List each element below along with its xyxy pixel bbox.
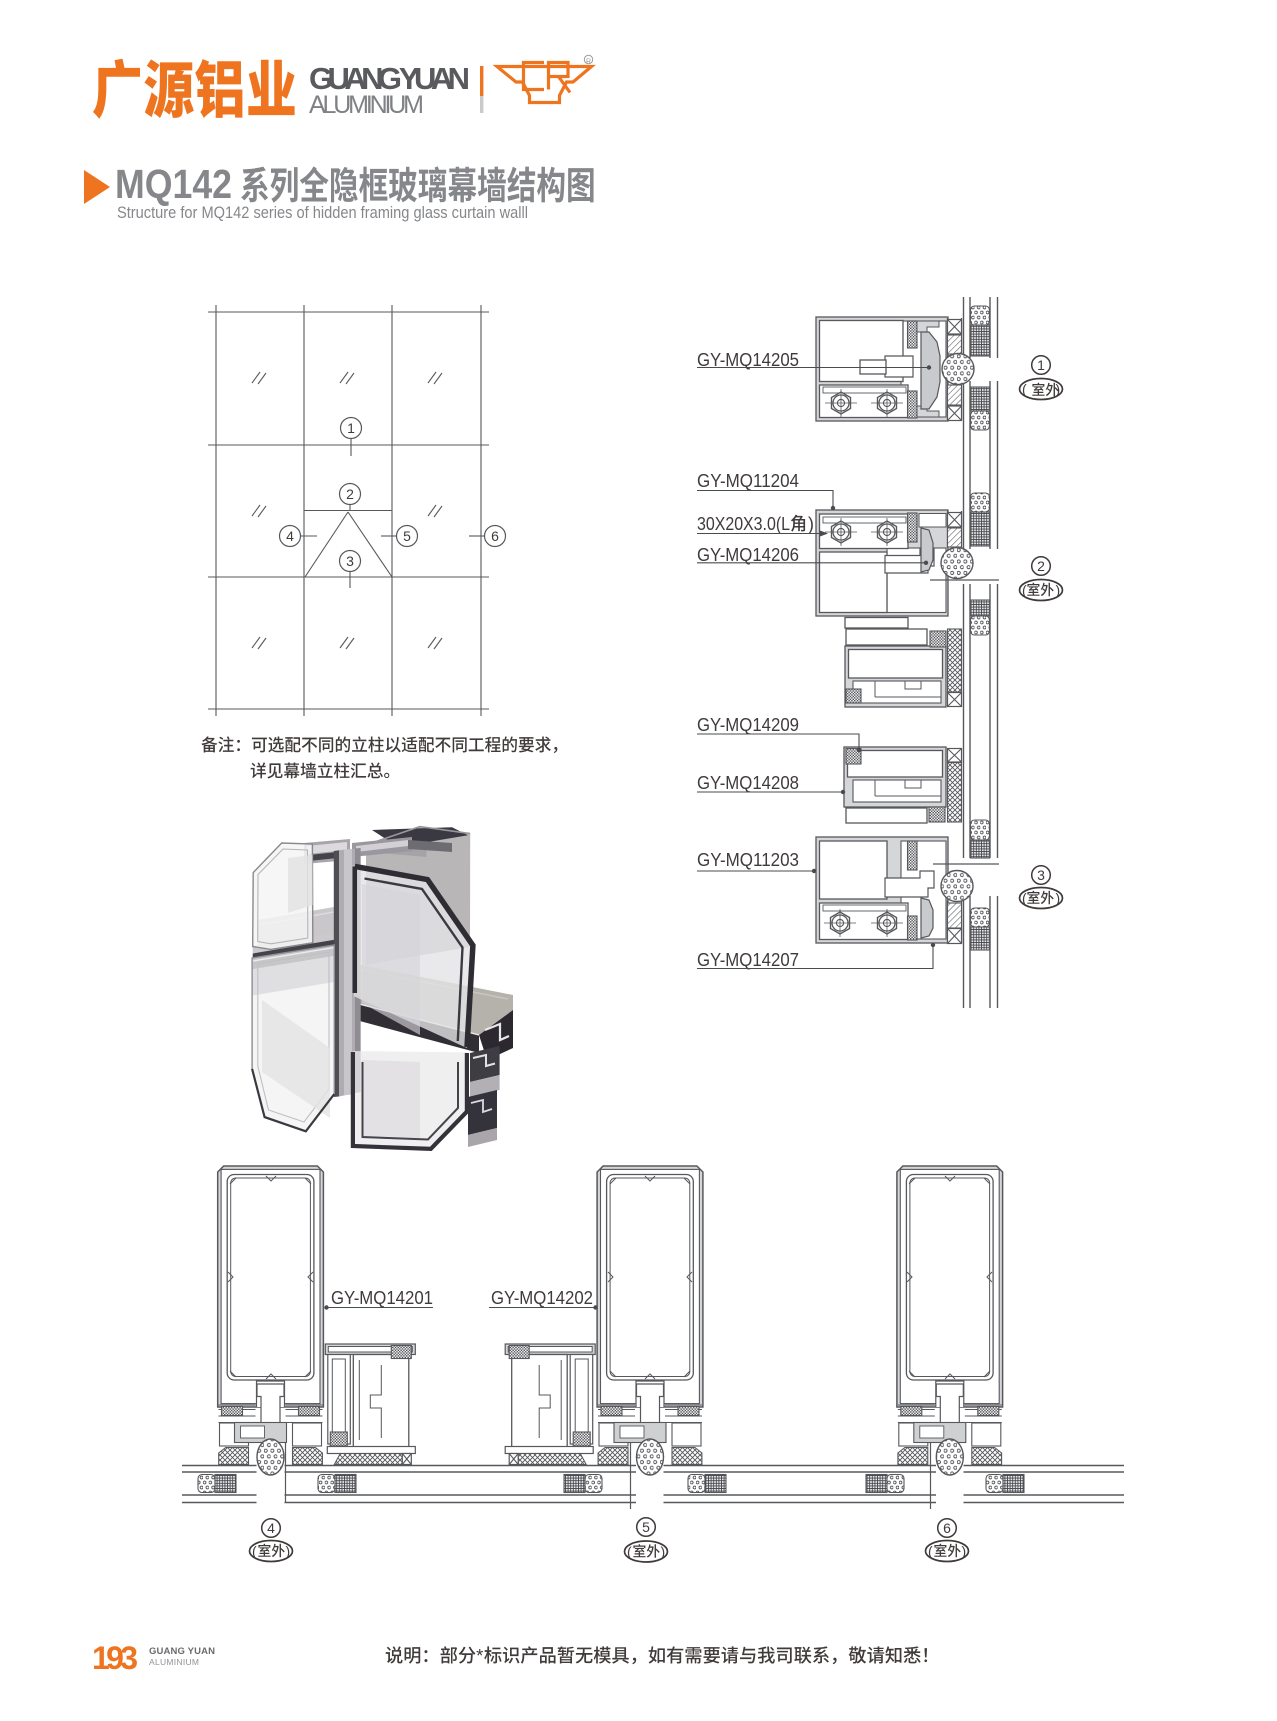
svg-text:6: 6 [943,1520,951,1536]
svg-text:GY-MQ14206: GY-MQ14206 [697,544,799,565]
svg-text:Structure for MQ142 series of: Structure for MQ142 series of hidden fra… [117,203,528,222]
svg-text:): ) [962,1543,967,1559]
svg-text:GY-MQ11203: GY-MQ11203 [697,849,799,870]
svg-text:*: * [476,1645,483,1666]
svg-text:GY-MQ14202: GY-MQ14202 [491,1287,593,1308]
svg-text:3: 3 [1037,867,1045,883]
svg-text:ALUMINIUM: ALUMINIUM [149,1657,199,1667]
svg-text:(: ( [252,1543,257,1559]
svg-text:1: 1 [1037,357,1045,373]
svg-text:4: 4 [267,1520,275,1536]
svg-text:): ) [1056,890,1061,906]
svg-text:GY-MQ14201: GY-MQ14201 [331,1287,433,1308]
svg-text:30X20X3.0(L: 30X20X3.0(L [697,513,790,534]
svg-text:(: ( [928,1543,933,1559]
svg-text:1: 1 [347,420,355,436]
svg-text:2: 2 [1037,558,1045,574]
svg-text:R: R [586,59,591,66]
svg-text:GY-MQ11204: GY-MQ11204 [697,470,799,491]
svg-text:MQ142: MQ142 [115,161,232,207]
svg-text:): ) [286,1543,291,1559]
svg-text:(: ( [1022,381,1027,397]
svg-text:4: 4 [286,528,294,544]
svg-text:193: 193 [92,1640,138,1676]
svg-text:(: ( [1022,582,1027,598]
svg-text:GUANG YUAN: GUANG YUAN [149,1646,215,1657]
svg-text:GY-MQ14208: GY-MQ14208 [697,772,799,793]
svg-text:2: 2 [346,486,354,502]
svg-text:): ) [661,1543,666,1559]
svg-text:GY-MQ14207: GY-MQ14207 [697,949,799,970]
svg-text:6: 6 [491,528,499,544]
svg-text:(: ( [627,1543,632,1559]
svg-text:ALUMINIUM: ALUMINIUM [309,91,424,119]
svg-text:5: 5 [642,1519,650,1535]
svg-text:(: ( [1022,890,1027,906]
svg-text:GY-MQ14205: GY-MQ14205 [697,349,799,370]
svg-text:3: 3 [346,553,354,569]
svg-text:): ) [1056,582,1061,598]
svg-text:GY-MQ14209: GY-MQ14209 [697,714,799,735]
svg-text:): ) [808,513,814,534]
svg-text:5: 5 [403,528,411,544]
